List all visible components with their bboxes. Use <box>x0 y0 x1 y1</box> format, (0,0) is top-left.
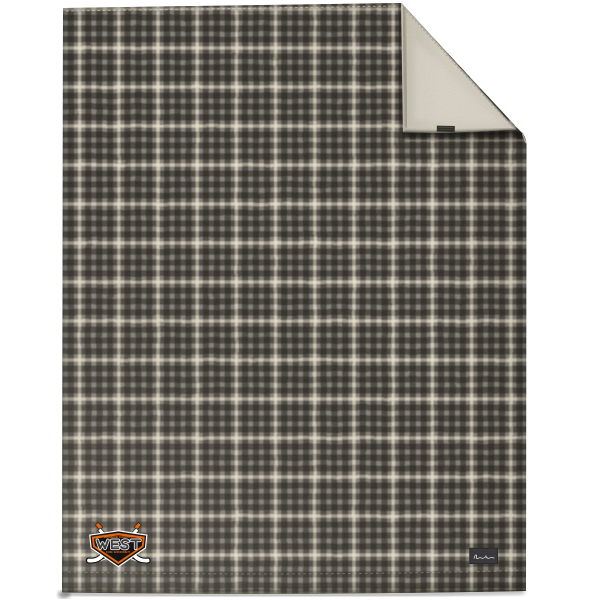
svg-text:ICE HOCKEY: ICE HOCKEY <box>106 550 130 554</box>
svg-text:ORANGE COUNTY: ORANGE COUNTY <box>104 535 133 539</box>
